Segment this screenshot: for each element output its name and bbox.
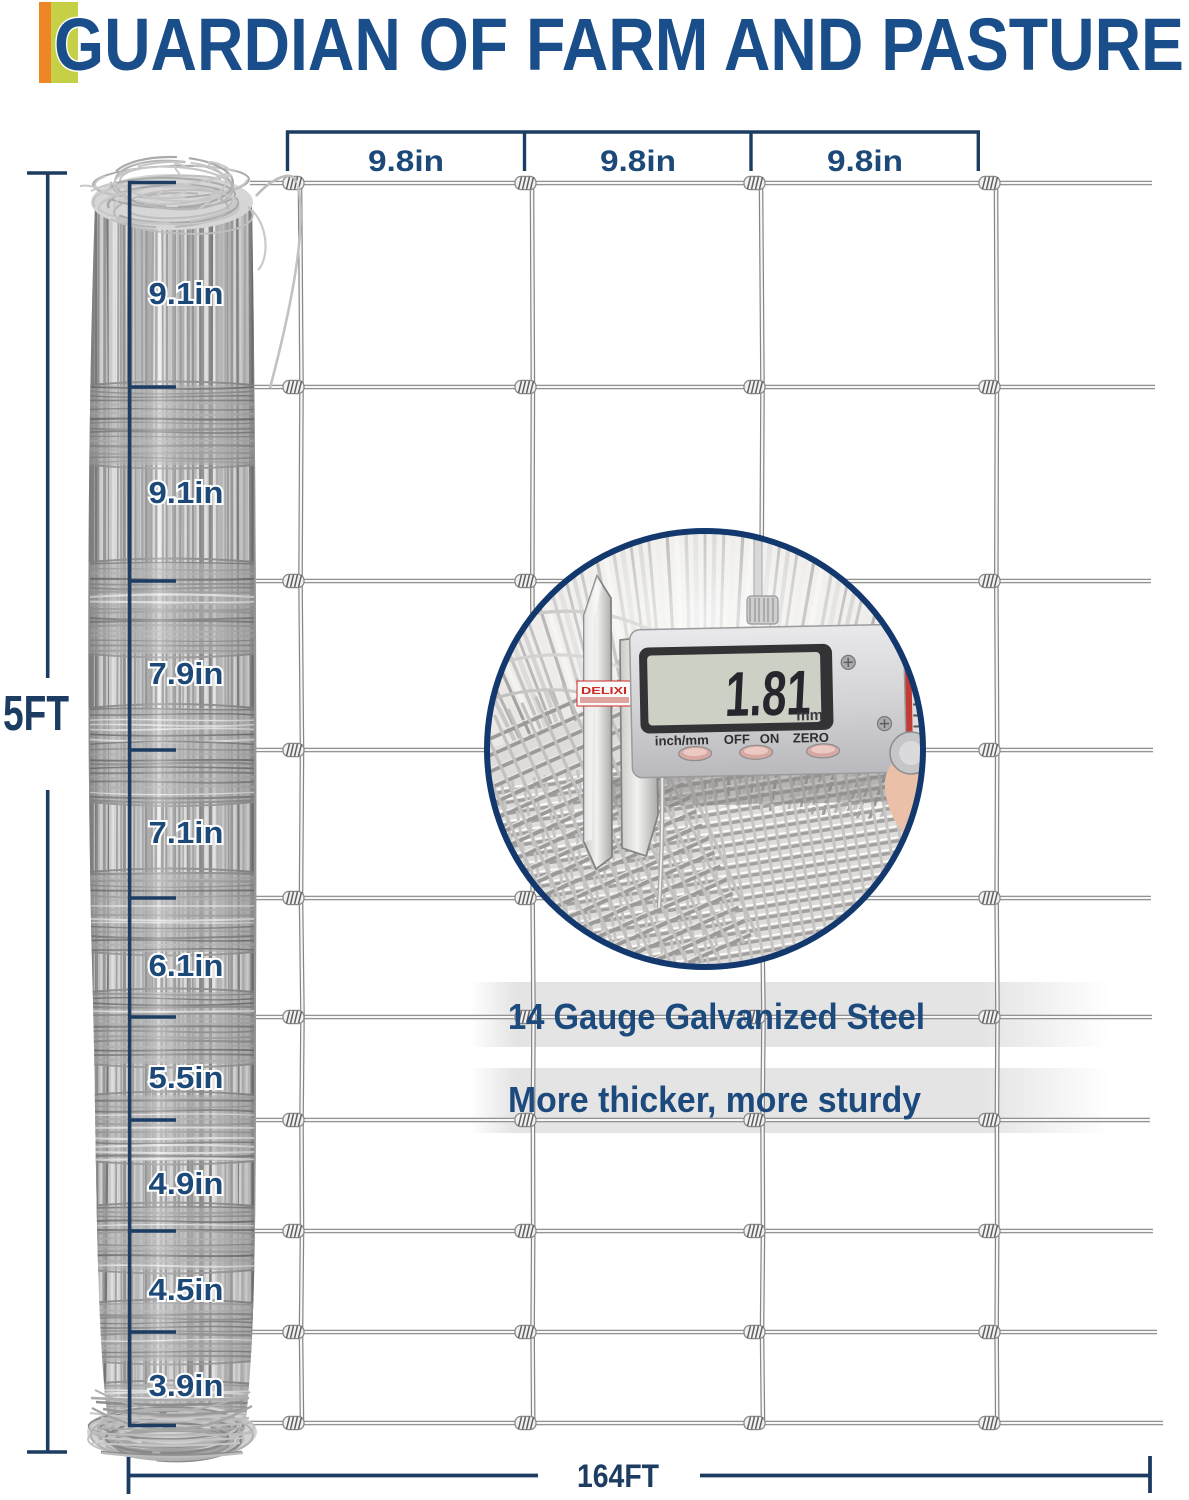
svg-text:4.9in: 4.9in (149, 1166, 224, 1201)
svg-text:GUARDIAN OF FARM AND PASTURE: GUARDIAN OF FARM AND PASTURE (54, 3, 1184, 86)
svg-text:14 Gauge Galvanized Steel: 14 Gauge Galvanized Steel (508, 996, 925, 1037)
svg-text:More thicker, more sturdy: More thicker, more sturdy (508, 1079, 921, 1120)
svg-text:9.8in: 9.8in (368, 145, 444, 178)
svg-text:9.8in: 9.8in (827, 145, 903, 178)
svg-text:7.1in: 7.1in (149, 815, 224, 850)
svg-text:ZERO: ZERO (793, 730, 829, 746)
svg-text:inch/mm: inch/mm (655, 732, 709, 748)
svg-text:5FT: 5FT (3, 687, 69, 741)
svg-text:ON: ON (760, 731, 780, 746)
svg-text:164FT: 164FT (577, 1458, 659, 1494)
svg-text:9.1in: 9.1in (149, 276, 224, 311)
svg-text:5.5in: 5.5in (149, 1060, 224, 1095)
svg-text:4.5in: 4.5in (149, 1272, 224, 1307)
svg-text:OFF: OFF (724, 731, 750, 747)
svg-text:mm: mm (796, 707, 823, 725)
svg-text:6.1in: 6.1in (149, 948, 224, 983)
svg-text:9.8in: 9.8in (600, 145, 676, 178)
svg-text:7.9in: 7.9in (149, 656, 224, 691)
svg-text:DELIXI: DELIXI (581, 685, 627, 697)
svg-text:9.1in: 9.1in (149, 475, 224, 510)
svg-text:3.9in: 3.9in (149, 1368, 224, 1403)
